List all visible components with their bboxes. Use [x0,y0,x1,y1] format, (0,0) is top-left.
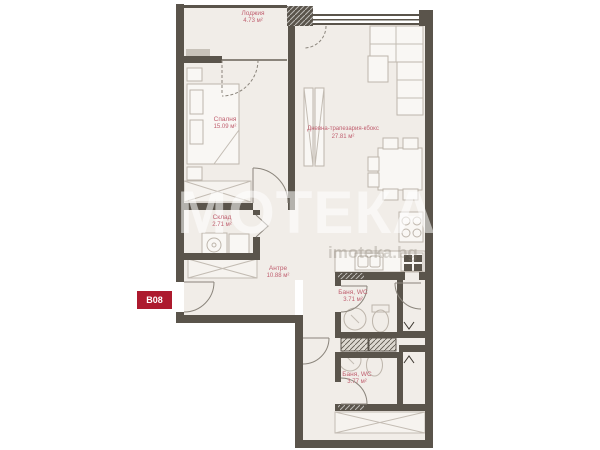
unit-badge: B08 [137,291,172,309]
room-name: Баня, WC [327,289,379,297]
room-area: 4.73 м² [222,18,284,26]
floor-plan-drawing [0,0,600,450]
dining-table [378,148,422,190]
room-area: 27.81 м² [288,134,398,142]
chair [383,189,398,200]
room-name: Склад [198,214,246,222]
room-label-storage: Склад 2.71 м² [198,214,246,230]
sofa-chaise [397,62,423,115]
room-label-living: Дневна-трапезария-кбокс 27.81 м² [288,126,398,142]
room-name: Антре [247,265,309,273]
room-name: Дневна-трапезария-кбокс [288,126,398,134]
wardrobe [335,412,425,433]
nightstand [187,167,202,180]
chair [368,157,379,171]
room-area: 2.71 м² [198,222,246,230]
chair [368,173,379,187]
wardrobe [184,181,251,202]
floor-plan: ИМОТЕКА imoteka.bg Лоджия 4.73 м² Спалня… [0,0,600,450]
room-area: 3.77 м² [331,379,383,387]
room-name: Лоджия [222,10,284,18]
room-name: Баня, WC [331,371,383,379]
room-name: Спалня [196,116,254,124]
room-area: 3.71 м² [327,297,379,305]
side-table [368,56,388,82]
room-label-loggia: Лоджия 4.73 м² [222,10,284,26]
room-label-bath-upper: Баня, WC 3.71 м² [327,289,379,305]
room-label-bedroom: Спалня 15.09 м² [196,116,254,132]
cooktop-unit [399,212,423,242]
room-area: 10.88 м² [247,273,309,281]
chair [403,189,418,200]
pillow [190,90,203,114]
chair [403,138,418,149]
room-label-hallway: Антре 10.88 м² [247,265,309,281]
storage-unit [229,234,249,256]
nightstand [187,68,202,81]
room-area: 15.09 м² [196,124,254,132]
room-label-bath-lower: Баня, WC 3.77 м² [331,371,383,387]
loggia-bench [186,49,210,56]
